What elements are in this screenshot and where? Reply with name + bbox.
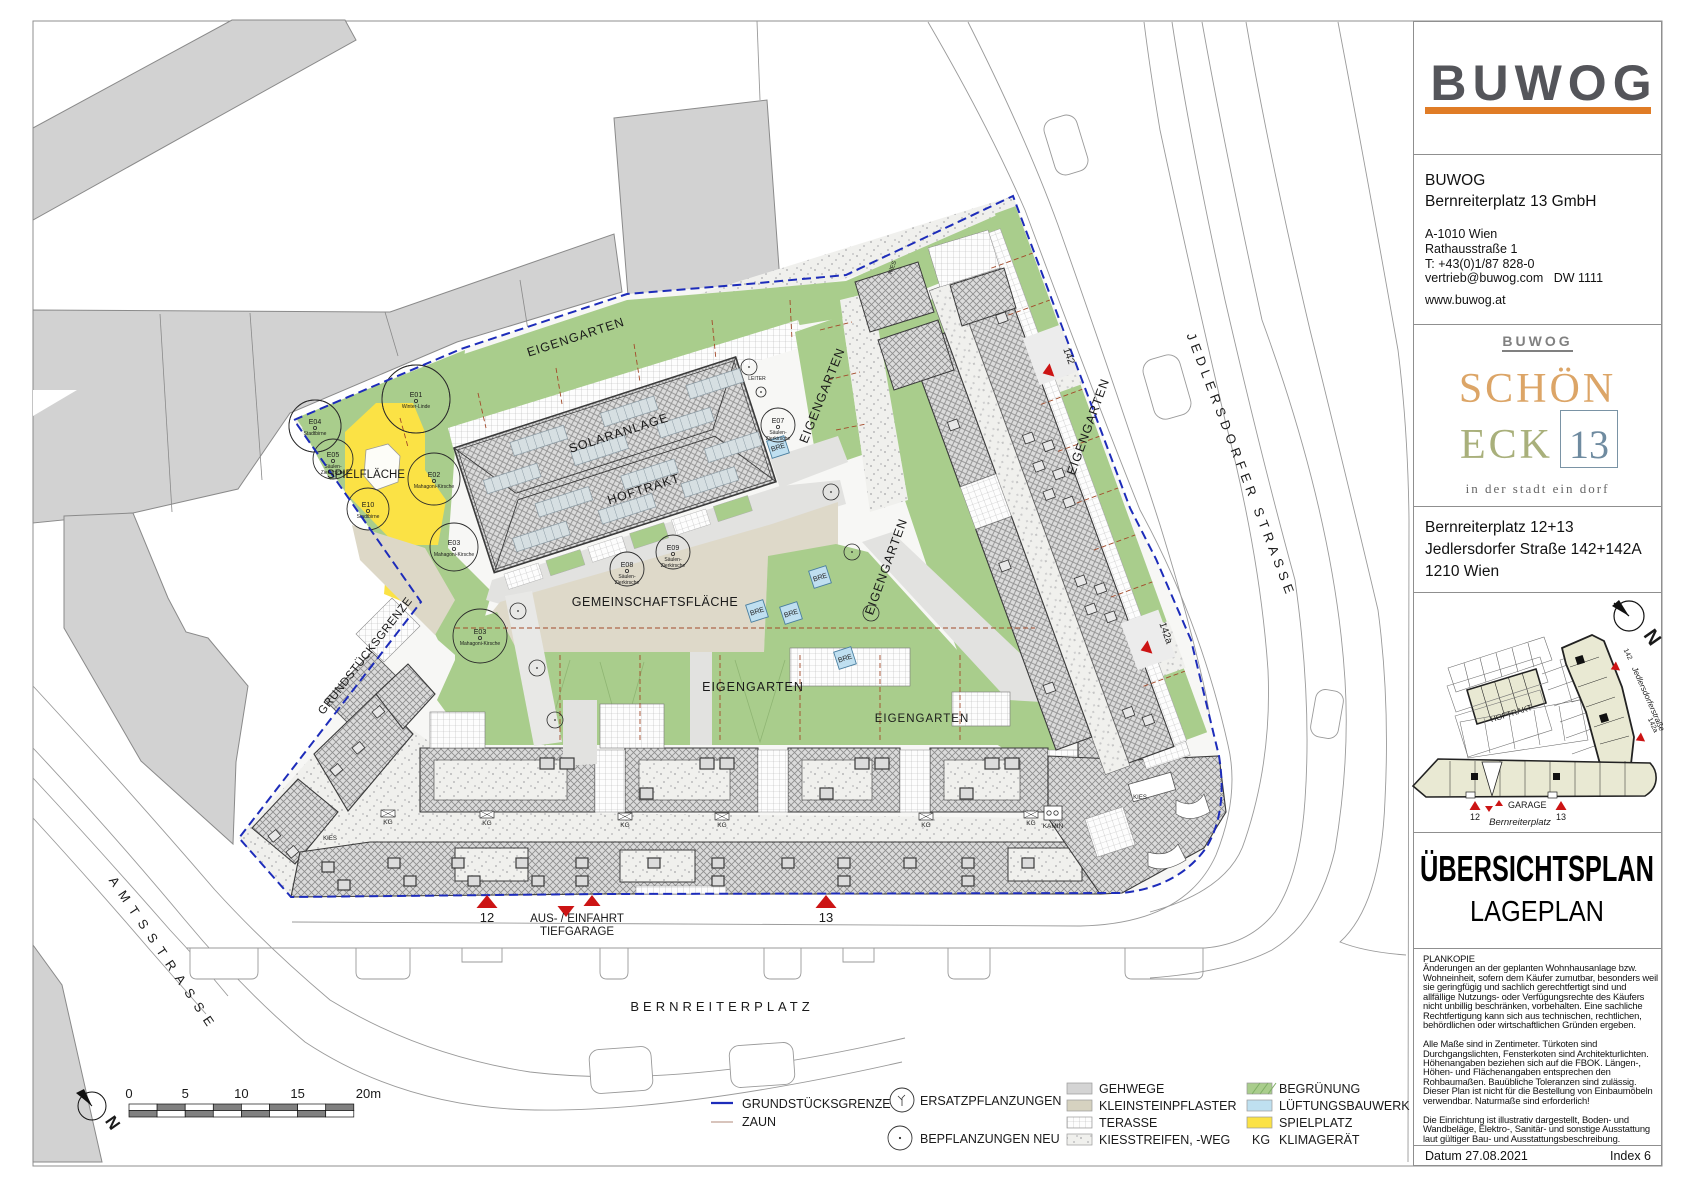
svg-text:E02: E02 <box>428 472 441 479</box>
svg-text:E10: E10 <box>362 502 375 509</box>
svg-text:E07: E07 <box>772 418 785 425</box>
svg-text:0: 0 <box>125 1086 132 1101</box>
svg-text:Winter-Linde: Winter-Linde <box>402 404 431 410</box>
svg-text:13: 13 <box>819 910 833 925</box>
svg-text:ZAUN: ZAUN <box>742 1115 776 1129</box>
svg-text:SPIELPLATZ: SPIELPLATZ <box>1279 1116 1353 1130</box>
svg-text:KG: KG <box>1252 1133 1270 1147</box>
svg-text:EIGENGARTEN: EIGENGARTEN <box>702 680 804 694</box>
svg-text:KLIMAGERÄT: KLIMAGERÄT <box>1279 1133 1360 1147</box>
svg-text:E04: E04 <box>309 419 322 426</box>
svg-text:E03: E03 <box>474 629 487 636</box>
svg-text:TIEFGARAGE: TIEFGARAGE <box>540 926 614 938</box>
svg-text:LAGEPLAN: LAGEPLAN <box>1470 896 1604 928</box>
svg-text:KAMIN: KAMIN <box>1043 823 1064 830</box>
svg-text:15: 15 <box>290 1086 304 1101</box>
svg-text:E01: E01 <box>410 392 423 399</box>
svg-text:TERASSE: TERASSE <box>1099 1116 1157 1130</box>
svg-text:Mahagoni-Kirsche: Mahagoni-Kirsche <box>434 552 475 558</box>
svg-text:GEMEINSCHAFTSFLÄCHE: GEMEINSCHAFTSFLÄCHE <box>572 595 738 609</box>
svg-text:Zierkirsche: Zierkirsche <box>766 436 791 442</box>
svg-text:E03: E03 <box>448 540 461 547</box>
svg-text:KG: KG <box>620 822 629 829</box>
svg-text:BEPFLANZUNGEN NEU: BEPFLANZUNGEN NEU <box>920 1132 1060 1146</box>
svg-text:ERSATZPFLANZUNGEN: ERSATZPFLANZUNGEN <box>920 1094 1061 1108</box>
svg-text:KG: KG <box>921 822 930 829</box>
svg-text:Mahagoni-Kirsche: Mahagoni-Kirsche <box>460 641 501 647</box>
svg-text:N: N <box>101 1112 124 1133</box>
svg-text:Mahagoni-Kirsche: Mahagoni-Kirsche <box>414 484 455 490</box>
svg-text:12: 12 <box>480 910 494 925</box>
svg-text:20m: 20m <box>356 1086 381 1101</box>
svg-text:GEHWEGE: GEHWEGE <box>1099 1082 1164 1096</box>
svg-text:E09: E09 <box>667 545 680 552</box>
svg-text:Zierkirsche: Zierkirsche <box>661 563 686 569</box>
svg-text:SPIELFLÄCHE: SPIELFLÄCHE <box>327 469 405 481</box>
svg-text:KIES: KIES <box>1133 795 1147 801</box>
svg-text:Stadtbirne: Stadtbirne <box>304 431 327 437</box>
svg-text:KIES: KIES <box>323 836 337 842</box>
svg-text:KG: KG <box>717 822 726 829</box>
svg-text:BERNREITERPLATZ: BERNREITERPLATZ <box>630 999 813 1014</box>
svg-text:ÜBERSICHTSPLAN: ÜBERSICHTSPLAN <box>1420 848 1654 889</box>
svg-text:E08: E08 <box>621 562 634 569</box>
svg-text:LEITER: LEITER <box>748 376 766 382</box>
svg-text:Zierkirsche: Zierkirsche <box>615 580 640 586</box>
svg-text:KG: KG <box>1026 820 1035 827</box>
svg-text:AUS- / EINFAHRT: AUS- / EINFAHRT <box>530 913 624 925</box>
svg-text:KG: KG <box>482 820 491 827</box>
svg-text:LÜFTUNGSBAUWERK: LÜFTUNGSBAUWERK <box>1279 1099 1410 1113</box>
svg-text:KLEINSTEINPFLASTER: KLEINSTEINPFLASTER <box>1099 1099 1237 1113</box>
svg-text:BEGRÜNUNG: BEGRÜNUNG <box>1279 1082 1360 1096</box>
svg-text:Stadtbirne: Stadtbirne <box>357 514 380 520</box>
svg-text:EIGENGARTEN: EIGENGARTEN <box>875 713 970 725</box>
svg-text:KIESSTREIFEN, -WEG: KIESSTREIFEN, -WEG <box>1099 1133 1230 1147</box>
svg-text:10: 10 <box>234 1086 248 1101</box>
svg-text:JEDLERSDORFER STRASSE: JEDLERSDORFER STRASSE <box>1184 331 1299 600</box>
svg-text:GRUNDSTÜCKSGRENZE: GRUNDSTÜCKSGRENZE <box>742 1097 891 1111</box>
svg-text:5: 5 <box>182 1086 189 1101</box>
svg-text:KG: KG <box>383 819 392 826</box>
svg-text:E05: E05 <box>327 452 340 459</box>
